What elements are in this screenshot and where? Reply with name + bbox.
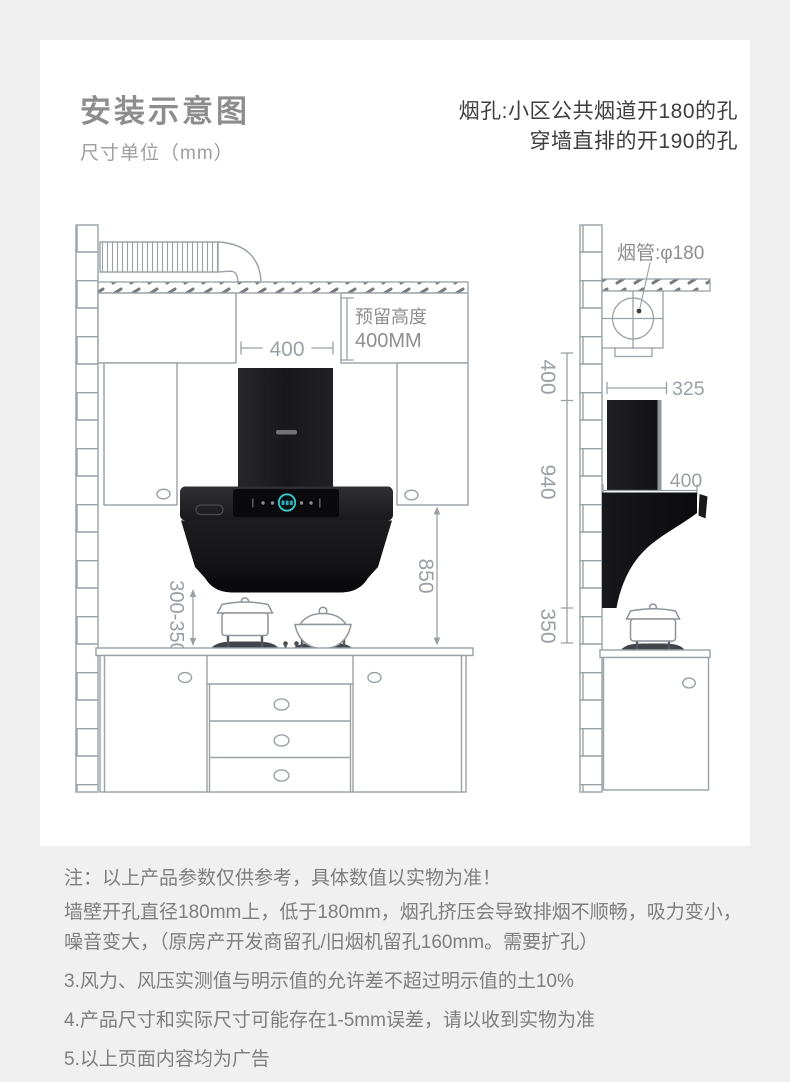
- ceiling-band-side: [602, 279, 710, 291]
- hood-body: [181, 521, 392, 579]
- hood-body-side: [602, 493, 697, 609]
- wok-lid: [300, 614, 346, 625]
- hood-panel-edge: [699, 494, 708, 519]
- door-handle-side: [683, 678, 696, 688]
- notes-section: 注：以上产品参数仅供参考，具体数值以实物为准！ 墙壁开孔直径180mm上，低于1…: [64, 864, 742, 1082]
- cabinet-handle: [405, 490, 418, 500]
- dim-top-clearance-label: 400: [536, 359, 559, 394]
- door-handle: [178, 673, 191, 683]
- wall-cabinet-side-right: [397, 363, 468, 505]
- brick-wall-left: [76, 225, 98, 792]
- cabinet-handle: [157, 489, 170, 499]
- dim-hood-height-label: 940: [536, 464, 559, 499]
- hood-intake: [205, 578, 368, 593]
- touch-button: [300, 501, 303, 504]
- touch-button: [261, 501, 264, 504]
- note-line: 3.风力、风压实测值与明示值的允许差不超过明示值的土10%: [64, 967, 742, 997]
- note-line: 注：以上产品参数仅供参考，具体数值以实物为准！: [64, 864, 742, 894]
- flex-duct: [100, 242, 218, 272]
- page: 安装示意图 尺寸单位（mm） 烟孔:小区公共烟道开180的孔 穿墙直排的开190…: [0, 0, 790, 1082]
- dim-chimney-width-label: 325: [672, 378, 705, 400]
- wall-cabinet-top-right: [341, 293, 468, 363]
- drawer-handle: [274, 699, 289, 710]
- reserved-height-label1: 预留高度: [355, 307, 427, 327]
- door-handle: [368, 673, 381, 683]
- dim-hood-to-cooktop: [190, 589, 196, 646]
- pot-lid-side: [627, 609, 680, 619]
- wall-cabinet-side-left: [104, 363, 177, 505]
- countertop: [96, 648, 473, 656]
- leader-dot: [637, 309, 642, 314]
- hood-chimney-side: [607, 400, 661, 490]
- range-hood-front: [180, 368, 393, 593]
- base-cabinet-side-box: [604, 658, 709, 791]
- ceiling-band-front: [98, 282, 468, 293]
- countertop-side: [600, 650, 710, 658]
- side-view: 烟管:φ180 400 940 350 325 400: [536, 225, 710, 792]
- duct-bracket: [615, 348, 652, 357]
- brand-logo: [276, 430, 297, 435]
- chimney-highlight: [658, 400, 662, 490]
- display-digit: [286, 501, 289, 506]
- base-cabinet-side: [600, 650, 710, 790]
- wall-cabinet-top-left: [98, 293, 236, 363]
- duct-elbow: [218, 242, 261, 282]
- pot-body-side: [631, 619, 676, 641]
- touch-button: [309, 501, 312, 504]
- panel-divider: [252, 499, 254, 508]
- note-line: 5.以上页面内容均为广告: [64, 1045, 742, 1075]
- drawer-handle: [274, 735, 289, 746]
- display-digit: [290, 501, 293, 506]
- cooktop-front: [211, 598, 353, 649]
- note-line: 4.产品尺寸和实际尺寸可能存在1-5mm误差，请以收到实物为准: [64, 1006, 742, 1036]
- drawer-handle: [274, 770, 289, 781]
- touch-button: [271, 501, 274, 504]
- note-line: 墙壁开孔直径180mm上，低于180mm，烟孔挤压会导致排烟不顺畅，吸力变小，噪…: [64, 898, 742, 958]
- dim-hood-to-cooktop-label: 300-350: [165, 580, 187, 653]
- base-cabinets: [96, 648, 473, 792]
- front-view: 400 预留高度 400MM: [76, 225, 473, 792]
- burner-side: [621, 643, 685, 650]
- reserved-height-label2: 400MM: [355, 330, 422, 352]
- dim-chimney-width: [607, 383, 667, 394]
- dim-bottom-clearance-label: 350: [536, 608, 559, 643]
- pot-lid: [218, 602, 273, 613]
- pot-body: [222, 613, 268, 636]
- duct-hole-box: [602, 291, 663, 357]
- dim-hood-width-label: 400: [269, 338, 304, 361]
- hood-chimney: [238, 368, 333, 488]
- panel-divider: [319, 499, 321, 508]
- cooktop-side: [621, 604, 685, 650]
- duct-label: 烟管:φ180: [617, 242, 704, 264]
- display-digit: [282, 501, 285, 506]
- brick-wall-right: [580, 225, 602, 792]
- dim-vertical-chain: [562, 353, 573, 643]
- dim-hood-to-counter-label: 850: [414, 558, 437, 593]
